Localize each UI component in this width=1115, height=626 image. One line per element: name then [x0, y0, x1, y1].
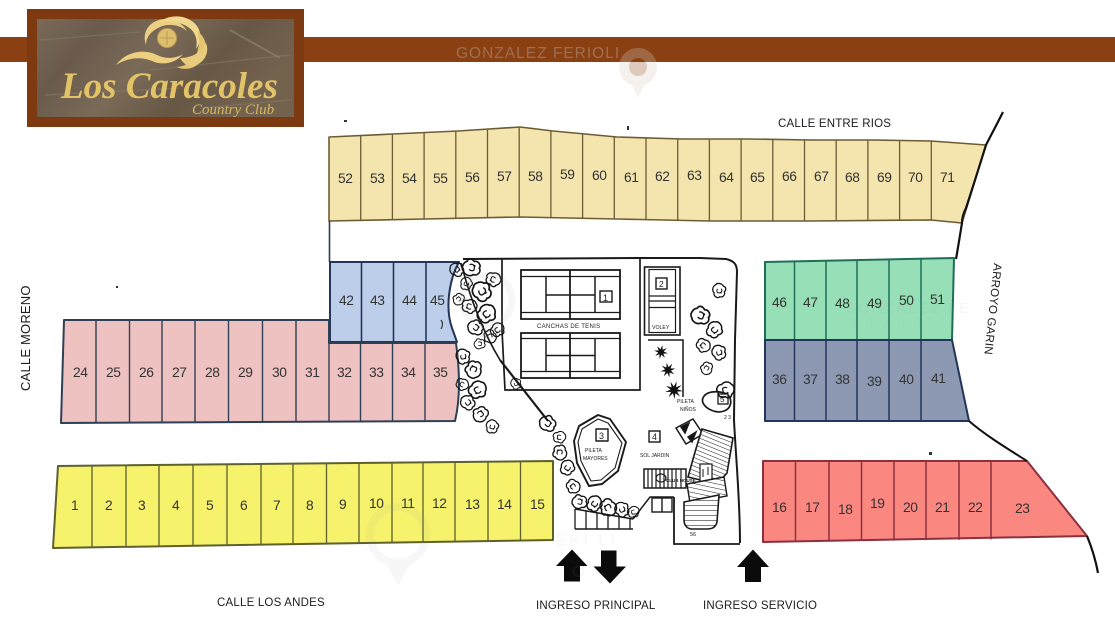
svg-text:57: 57 — [497, 169, 512, 184]
svg-text:R I O L I: R I O L I — [852, 321, 925, 332]
svg-text:INGRESO SERVICIO: INGRESO SERVICIO — [703, 600, 817, 612]
svg-text:55: 55 — [433, 171, 448, 186]
svg-text:9: 9 — [339, 497, 347, 512]
svg-text:68: 68 — [845, 170, 860, 185]
svg-text:O: O — [572, 564, 587, 581]
svg-text:41: 41 — [931, 371, 946, 386]
svg-text:53: 53 — [370, 171, 385, 186]
svg-text:4: 4 — [172, 498, 180, 513]
svg-text:5: 5 — [206, 498, 214, 513]
svg-text:15: 15 — [530, 497, 545, 512]
svg-text:INGRESO PRINCIPAL: INGRESO PRINCIPAL — [536, 600, 656, 612]
svg-text:30: 30 — [272, 365, 287, 380]
svg-text:CANCHAS DE TENIS: CANCHAS DE TENIS — [537, 324, 600, 330]
svg-text:14: 14 — [497, 497, 512, 512]
svg-text:CALLE MORENO: CALLE MORENO — [18, 285, 33, 391]
svg-text:39: 39 — [867, 374, 882, 389]
svg-text:31: 31 — [305, 365, 320, 380]
svg-text:23: 23 — [1015, 501, 1030, 516]
svg-text:56: 56 — [690, 532, 696, 538]
svg-text:33: 33 — [369, 365, 384, 380]
svg-text:1: 1 — [71, 498, 78, 513]
svg-text:3: 3 — [138, 498, 146, 513]
svg-text:16: 16 — [772, 500, 787, 515]
svg-text:12: 12 — [432, 496, 447, 511]
svg-text:46: 46 — [772, 295, 787, 310]
svg-text:70: 70 — [908, 170, 923, 185]
svg-text:CLUB HOUSE: CLUB HOUSE — [666, 478, 696, 483]
svg-text:42: 42 — [339, 293, 354, 308]
svg-text:18: 18 — [838, 502, 853, 517]
svg-text:25: 25 — [106, 365, 121, 380]
svg-text:Los Caracoles: Los Caracoles — [60, 66, 278, 107]
svg-text:7: 7 — [273, 498, 280, 513]
svg-text:4: 4 — [652, 432, 657, 442]
svg-text:22: 22 — [968, 500, 983, 515]
svg-text:27: 27 — [172, 365, 187, 380]
svg-text:45: 45 — [430, 293, 445, 308]
svg-text:69: 69 — [877, 170, 892, 185]
svg-text:21: 21 — [935, 500, 950, 515]
svg-text:28: 28 — [205, 365, 220, 380]
svg-text:13: 13 — [465, 497, 480, 512]
svg-text:3: 3 — [599, 431, 604, 441]
svg-text:65: 65 — [750, 170, 765, 185]
svg-text:37: 37 — [803, 372, 818, 387]
svg-text:32: 32 — [337, 365, 352, 380]
svg-text:36: 36 — [772, 372, 787, 387]
svg-text:PILETA: PILETA — [585, 448, 603, 454]
svg-text:1: 1 — [603, 293, 608, 303]
svg-text:63: 63 — [687, 168, 702, 183]
svg-text:58: 58 — [528, 169, 543, 184]
svg-text:CALLE LOS ANDES: CALLE LOS ANDES — [217, 597, 325, 609]
svg-text:MAYORES: MAYORES — [583, 456, 608, 462]
svg-text:NIÑOS: NIÑOS — [680, 406, 697, 413]
svg-text:66: 66 — [782, 169, 797, 184]
svg-text:52: 52 — [338, 171, 353, 186]
svg-text:GONZALEZ FE: GONZALEZ FE — [845, 300, 971, 317]
svg-text:43: 43 — [370, 293, 385, 308]
svg-text:2 3: 2 3 — [724, 415, 731, 421]
svg-text:62: 62 — [655, 169, 670, 184]
svg-text:2: 2 — [659, 279, 664, 289]
svg-text:47: 47 — [803, 295, 818, 310]
svg-text:SOL JARDIN: SOL JARDIN — [640, 453, 670, 459]
svg-text:GONZALEZ FERIOLI: GONZALEZ FERIOLI — [456, 45, 620, 62]
svg-text:67: 67 — [814, 169, 829, 184]
svg-text:34: 34 — [401, 365, 416, 380]
svg-text:71: 71 — [940, 170, 955, 185]
svg-text:6: 6 — [240, 498, 248, 513]
svg-text:29: 29 — [238, 365, 253, 380]
svg-text:40: 40 — [899, 372, 914, 387]
svg-text:8: 8 — [306, 498, 314, 513]
svg-text:35: 35 — [433, 365, 448, 380]
svg-text:Country Club: Country Club — [192, 102, 275, 118]
svg-text:26: 26 — [139, 365, 154, 380]
svg-text:24: 24 — [73, 365, 88, 380]
svg-text:59: 59 — [560, 167, 575, 182]
svg-text:56: 56 — [465, 170, 480, 185]
svg-text:17: 17 — [805, 500, 820, 515]
svg-text:54: 54 — [402, 171, 417, 186]
svg-text:CALLE ENTRE RIOS: CALLE ENTRE RIOS — [778, 118, 891, 130]
svg-text:VOLEY: VOLEY — [652, 325, 670, 331]
svg-text:EKI LI: EKI LI — [556, 532, 618, 549]
svg-text:2: 2 — [105, 498, 112, 513]
svg-text:19: 19 — [870, 496, 885, 511]
svg-text:20: 20 — [903, 500, 918, 515]
svg-text:PILETA: PILETA — [677, 399, 695, 405]
svg-text:38: 38 — [835, 372, 850, 387]
svg-text:61: 61 — [624, 170, 639, 185]
svg-text:64: 64 — [719, 170, 734, 185]
svg-text:44: 44 — [402, 293, 417, 308]
svg-text:60: 60 — [592, 168, 607, 183]
